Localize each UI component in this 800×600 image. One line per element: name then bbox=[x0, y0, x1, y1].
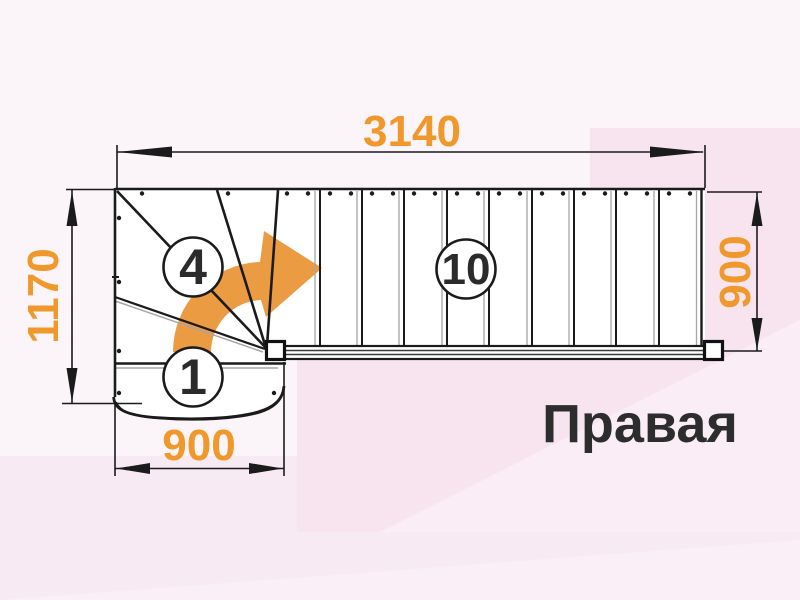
dim-bottom-label: 900 bbox=[162, 421, 235, 470]
staircase-drawing: 4 1 10 3140 1170 900 900 bbox=[0, 0, 800, 600]
dim-right-label: 900 bbox=[711, 235, 760, 308]
page-title: Правая bbox=[542, 394, 738, 454]
step-number-first: 1 bbox=[179, 349, 207, 405]
newel-post-left bbox=[267, 342, 285, 360]
dim-top-label: 3140 bbox=[363, 107, 461, 156]
newel-post-right bbox=[705, 342, 723, 360]
step-number-winder: 4 bbox=[179, 239, 207, 295]
staircase-plan-svg: 4 1 10 3140 1170 900 900 bbox=[0, 0, 800, 600]
step-number-straight: 10 bbox=[442, 245, 491, 294]
stringer-rail bbox=[284, 346, 706, 359]
dim-left-label: 1170 bbox=[19, 248, 68, 343]
